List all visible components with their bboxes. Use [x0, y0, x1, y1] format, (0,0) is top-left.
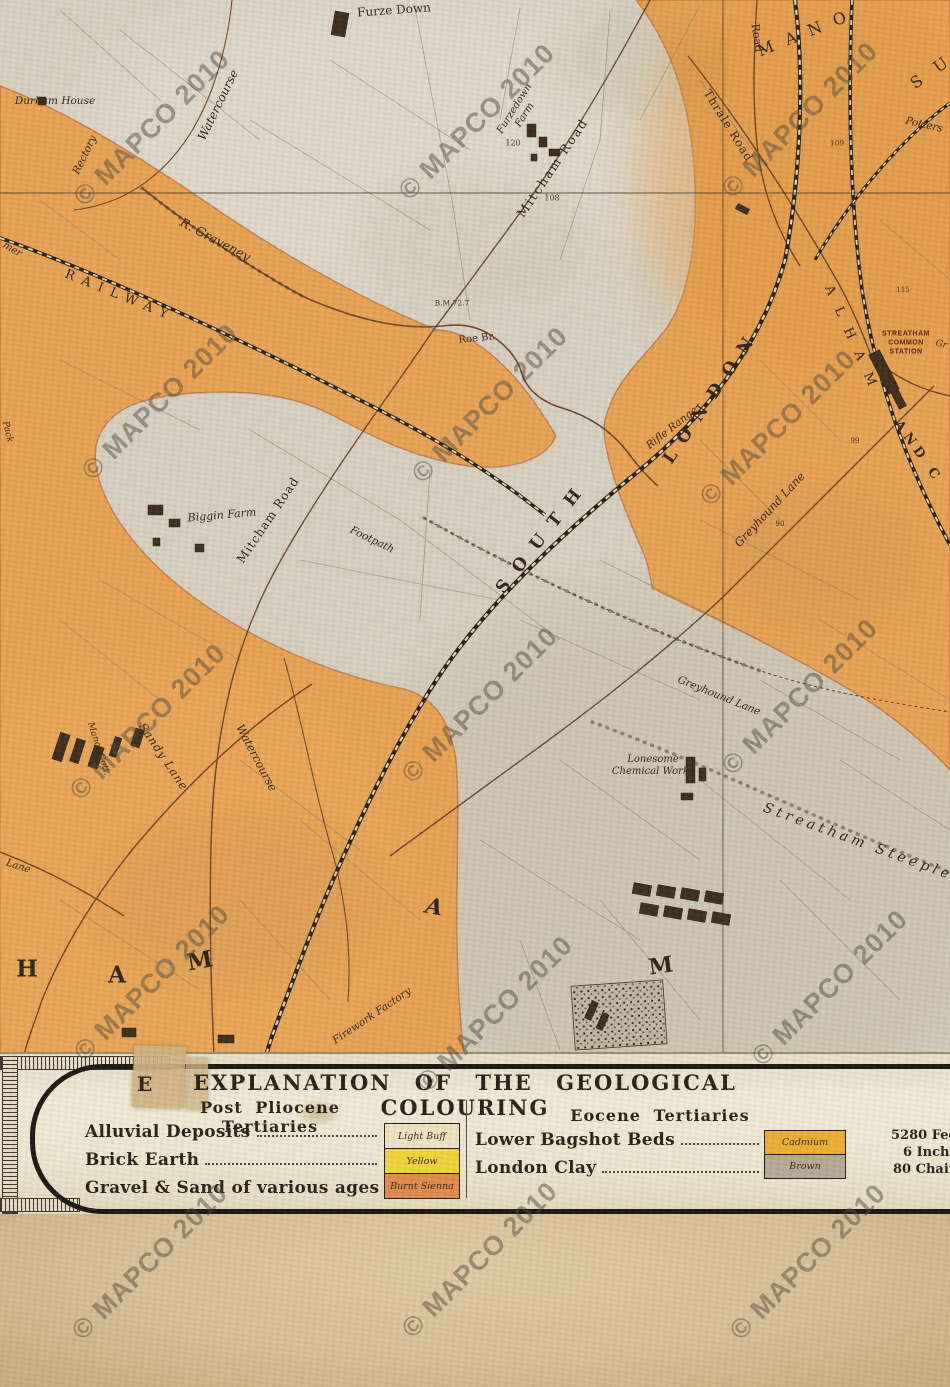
map-label: B.M.72.7 — [435, 300, 470, 309]
swatch-brown: Brown — [765, 1155, 845, 1178]
swatch-light-buff: Light Buff — [385, 1124, 459, 1149]
map-label: Rifle Range — [644, 404, 700, 452]
map-label: Greyhound Lane — [732, 470, 808, 550]
dotted-leader — [681, 1143, 759, 1145]
legend-row-label: Lower Bagshot Beds — [475, 1130, 675, 1150]
map-label: Manor Cott. — [84, 721, 111, 777]
legend-swatch-stack-left: Light Buff Yellow Burnt Sienna — [384, 1123, 460, 1199]
legend-column-divider — [466, 1100, 467, 1198]
map-label: R. Graveney — [177, 215, 253, 265]
map-label: Road — [748, 23, 765, 53]
map-label: 108 — [544, 193, 559, 202]
map-label: A — [108, 961, 126, 988]
legend-row: Lower Bagshot Beds — [475, 1130, 763, 1150]
map-label: Thrale Road — [700, 87, 755, 164]
legend-row-label: Alluvial Deposits — [85, 1122, 251, 1142]
dotted-leader — [602, 1171, 759, 1173]
map-label: 120 — [505, 138, 520, 147]
legend-row: Alluvial Deposits — [85, 1122, 381, 1142]
scale-note-inches: 6 Inches — [903, 1145, 950, 1160]
map-label: Streatham Steeple — [761, 800, 950, 884]
swatch-label: Light Buff — [398, 1131, 446, 1142]
map-label: Watercourse — [195, 67, 241, 142]
scale-note-feet: 5280 Feet — [891, 1128, 950, 1143]
swatch-label: Cadmium — [782, 1137, 828, 1148]
map-label: Durham House — [15, 95, 95, 107]
swatch-yellow: Yellow — [385, 1149, 459, 1174]
map-label: S U — [907, 51, 950, 94]
dotted-leader — [257, 1135, 377, 1137]
swatch-cadmium: Cadmium — [765, 1131, 845, 1155]
map-labels-layer: Furze DownDurham HouseRectoryWatercourse… — [0, 0, 950, 1056]
map-label: 99 — [851, 437, 860, 445]
map-label: A — [423, 894, 444, 923]
map-label: H — [16, 955, 38, 982]
swatch-burnt-sienna: Burnt Sienna — [385, 1174, 459, 1198]
legend-row: Gravel & Sand of various ages — [85, 1178, 385, 1198]
blank-paper-margin — [0, 1212, 950, 1387]
legend-row: London Clay — [475, 1158, 763, 1178]
map-label: Mitcham Road — [514, 116, 591, 221]
dotted-leader — [205, 1163, 377, 1165]
scale-note-chains: 80 Chains — [893, 1162, 950, 1177]
map-label: M A N O — [755, 7, 853, 61]
map-label: Furze Down — [357, 0, 432, 19]
swatch-label: Yellow — [407, 1156, 438, 1167]
legend-right-header: Eocene Tertiaries — [520, 1106, 800, 1125]
swatch-label: Brown — [789, 1161, 821, 1172]
legend-band: E EXPLANATION OF THE GEOLOGICAL COLOURIN… — [0, 1052, 950, 1214]
legend-row-label: Gravel & Sand of various ages — [85, 1178, 379, 1198]
map-label: Lonesome Chemical Works — [612, 754, 694, 778]
map-label: Greyhound Lane — [676, 674, 763, 719]
legend-row-label: London Clay — [475, 1158, 596, 1178]
swatch-label: Burnt Sienna — [390, 1181, 454, 1192]
map-label: Mitcham Road — [234, 474, 302, 566]
map-label: M — [185, 945, 215, 976]
map-label: AND C — [891, 418, 945, 487]
map-label: mer — [0, 240, 23, 260]
map-label: 109 — [830, 140, 844, 149]
map-label: Gr — [934, 338, 948, 351]
map-label: A L H A M — [821, 283, 881, 393]
map-label: 115 — [896, 286, 909, 294]
map-label: Sandy Lane — [135, 721, 190, 794]
map-label: Pack — [0, 420, 15, 443]
legend-row: Brick Earth — [85, 1150, 381, 1170]
map-label: Watercourse — [233, 722, 280, 793]
map-label: Roe Br. — [458, 331, 496, 347]
scanned-geological-map-page: Furze DownDurham HouseRectoryWatercourse… — [0, 0, 950, 1387]
map-label: STREATHAM COMMON STATION — [882, 329, 930, 356]
map-label: M — [647, 952, 675, 981]
legend-swatch-stack-right: Cadmium Brown — [764, 1130, 846, 1179]
legend-row-label: Brick Earth — [85, 1150, 199, 1170]
map-label: SOUTH — [492, 474, 594, 597]
map-label: Furzedown Farm — [495, 82, 545, 143]
map-label: Footpath — [348, 524, 396, 556]
scale-ruler-left — [2, 1056, 18, 1214]
map-label: RAILWAY — [62, 267, 177, 325]
map-label: Biggin Farm — [187, 507, 257, 526]
map-label: Rectory — [70, 134, 99, 177]
map-label: LONDON — [659, 324, 765, 467]
map-label: Lane — [4, 858, 31, 877]
map-label: Potters — [904, 115, 944, 136]
map-label: Firework Factory — [330, 985, 413, 1047]
map-label: 90 — [776, 520, 785, 528]
